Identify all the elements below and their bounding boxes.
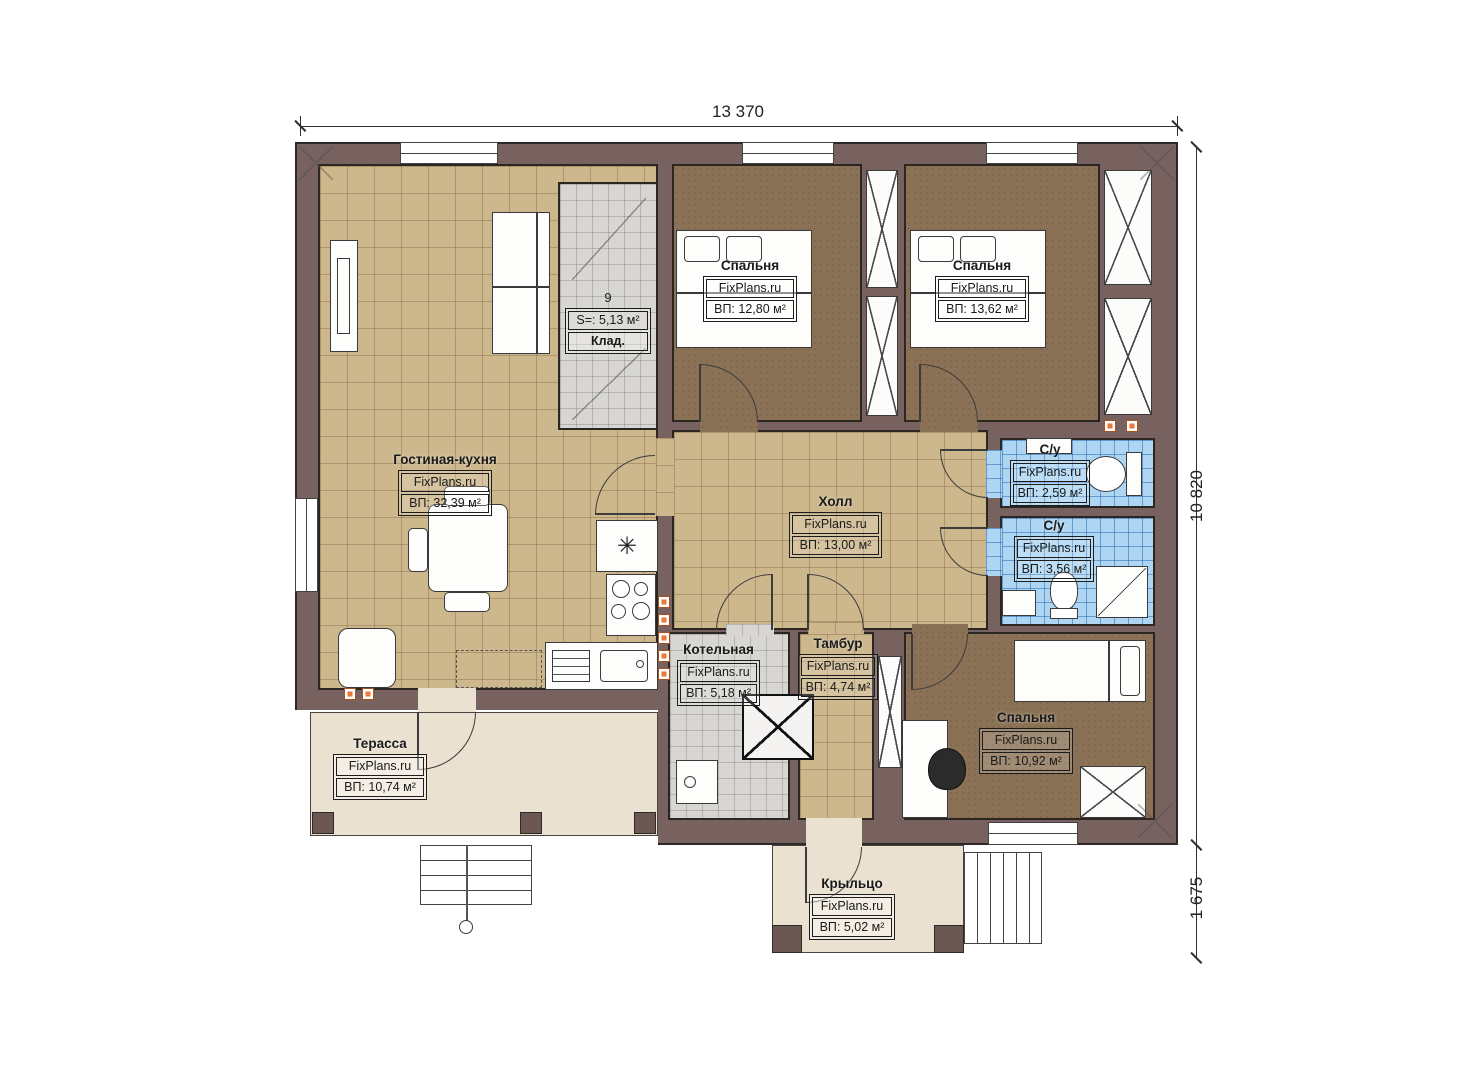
label-bedroom1: Спальня FixPlans.ru ВП: 12,80 м² <box>690 258 810 322</box>
label-hall: Холл FixPlans.ru ВП: 13,00 м² <box>778 494 893 558</box>
door-leaf <box>911 634 913 690</box>
cabinet-line <box>493 286 549 288</box>
label-storage: 9 S=: 5,13 м² Клад. <box>556 290 660 354</box>
door-opening <box>418 688 476 712</box>
dimension-value-porch: 1 675 <box>1187 863 1207 933</box>
shower-diagonal <box>1098 568 1146 616</box>
room-name: Спальня <box>953 258 1011 274</box>
room-name: Тамбур <box>814 636 863 652</box>
brand-watermark: FixPlans.ru <box>792 515 880 534</box>
washing-machine-door <box>684 776 696 788</box>
steps-marker-circle <box>459 920 473 934</box>
door-opening <box>986 528 1002 576</box>
room-area: ВП: 10,92 м² <box>982 752 1070 771</box>
wardrobe-hatch <box>1080 766 1146 818</box>
window <box>988 822 1078 845</box>
window <box>400 142 498 164</box>
room-name: С/у <box>1043 518 1064 534</box>
corner-mark <box>1138 804 1172 838</box>
room-name: Котельная <box>683 642 754 658</box>
vent-marker <box>658 596 670 608</box>
room-area: ВП: 4,74 м² <box>801 678 876 697</box>
brand-watermark: FixPlans.ru <box>938 279 1026 298</box>
room-area: ВП: 13,00 м² <box>792 536 880 555</box>
appliance-dashed <box>456 650 542 688</box>
steps-marker-line <box>466 845 468 921</box>
room-number: 9 <box>604 290 611 306</box>
room-area: ВП: 32,39 м² <box>401 494 489 513</box>
washing-machine <box>676 760 718 804</box>
room-name: Крыльцо <box>821 876 882 892</box>
door-leaf <box>940 449 988 451</box>
toilet-tank <box>1050 608 1078 619</box>
burner <box>634 582 648 596</box>
brand-watermark: FixPlans.ru <box>1017 539 1092 558</box>
room-area: ВП: 5,18 м² <box>680 684 757 703</box>
label-terrace: Терасса FixPlans.ru ВП: 10,74 м² <box>326 736 434 800</box>
brand-watermark: FixPlans.ru <box>801 657 876 676</box>
label-living: Гостиная-кухня FixPlans.ru ВП: 32,39 м² <box>383 452 507 516</box>
room-area: S=: 5,13 м² <box>568 311 647 330</box>
closet-hatch <box>1104 170 1152 285</box>
pillow <box>1120 646 1140 696</box>
corner-mark <box>1140 146 1174 180</box>
chair <box>444 592 490 612</box>
label-bedroom2: Спальня FixPlans.ru ВП: 13,62 м² <box>922 258 1042 322</box>
bath2-sink <box>1002 590 1036 616</box>
label-bath2: С/у FixPlans.ru ВП: 3,56 м² <box>1008 518 1100 582</box>
door-leaf <box>699 364 701 422</box>
door-leaf <box>919 364 921 422</box>
label-tambour: Тамбур FixPlans.ru ВП: 4,74 м² <box>792 636 884 700</box>
console-inner <box>337 258 350 334</box>
room-area: ВП: 13,62 м² <box>938 300 1026 319</box>
vent-marker <box>1126 420 1138 432</box>
porch-steps <box>964 852 1042 944</box>
brand-watermark: FixPlans.ru <box>336 757 424 776</box>
terrace-post <box>634 812 656 834</box>
dimension-value-right: 10 820 <box>1187 461 1207 531</box>
burner <box>632 602 650 620</box>
closet-hatch <box>866 170 898 288</box>
chair <box>408 528 428 572</box>
room-area: ВП: 5,02 м² <box>812 918 893 937</box>
door-opening <box>806 818 862 847</box>
armchair <box>338 628 396 688</box>
door-leaf <box>595 513 655 515</box>
room-name: Спальня <box>721 258 779 274</box>
porch-post <box>934 925 964 953</box>
brand-watermark: FixPlans.ru <box>401 473 489 492</box>
door-leaf <box>807 574 809 630</box>
brand-watermark: FixPlans.ru <box>982 731 1070 750</box>
room-area: ВП: 2,59 м² <box>1013 484 1088 503</box>
closet-hatch <box>866 296 898 416</box>
room-area: ВП: 10,74 м² <box>336 778 424 797</box>
door-opening <box>986 450 1002 498</box>
door-leaf <box>940 527 988 529</box>
cabinet <box>492 212 550 354</box>
room-area: ВП: 12,80 м² <box>706 300 794 319</box>
room-area: ВП: 3,56 м² <box>1017 560 1092 579</box>
floor-plan-canvas: ✳ Гостиная-кухня FixPlans.ru ВП <box>0 0 1473 1080</box>
vent-marker <box>362 688 374 700</box>
label-boiler: Котельная FixPlans.ru ВП: 5,18 м² <box>666 642 771 706</box>
room-name: Спальня <box>997 710 1055 726</box>
door-opening <box>656 438 674 516</box>
drawers <box>552 650 590 682</box>
terrace-post <box>520 812 542 834</box>
shelf-mark <box>572 348 646 420</box>
dining-table <box>428 504 508 592</box>
vent-marker <box>344 688 356 700</box>
brand-watermark: FixPlans.ru <box>1013 463 1088 482</box>
blanket-line <box>1108 641 1110 701</box>
burner <box>612 580 630 598</box>
corner-mark <box>299 146 333 180</box>
door-leaf <box>771 574 773 630</box>
window <box>986 142 1078 164</box>
vent-marker <box>658 614 670 626</box>
brand-watermark: FixPlans.ru <box>812 897 893 916</box>
dimension-value-top: 13 370 <box>638 102 838 122</box>
toilet-tank <box>1126 452 1142 496</box>
burner <box>611 604 626 619</box>
brand-watermark: FixPlans.ru <box>706 279 794 298</box>
window <box>295 498 318 592</box>
room-name: Терасса <box>353 736 407 752</box>
vent-marker <box>1104 420 1116 432</box>
closet-hatch <box>1104 298 1152 415</box>
office-chair <box>928 748 966 790</box>
room-name: С/у <box>1039 442 1060 458</box>
label-bedroom3: Спальня FixPlans.ru ВП: 10,92 м² <box>966 710 1086 774</box>
room-name: Гостиная-кухня <box>393 452 496 468</box>
brand-watermark: FixPlans.ru <box>680 663 757 682</box>
label-bath1: С/у FixPlans.ru ВП: 2,59 м² <box>1004 442 1096 506</box>
shelf-mark <box>572 198 646 280</box>
terrace-post <box>312 812 334 834</box>
room-name: Холл <box>819 494 853 510</box>
label-porch: Крыльцо FixPlans.ru ВП: 5,02 м² <box>796 876 908 940</box>
faucet <box>636 660 644 668</box>
cabinet-line <box>536 213 538 353</box>
dimension-line-top <box>300 126 1178 127</box>
terrace-steps <box>420 845 532 905</box>
heater-symbol: ✳ <box>596 520 658 572</box>
window <box>742 142 834 164</box>
room-name: Клад. <box>568 332 647 351</box>
